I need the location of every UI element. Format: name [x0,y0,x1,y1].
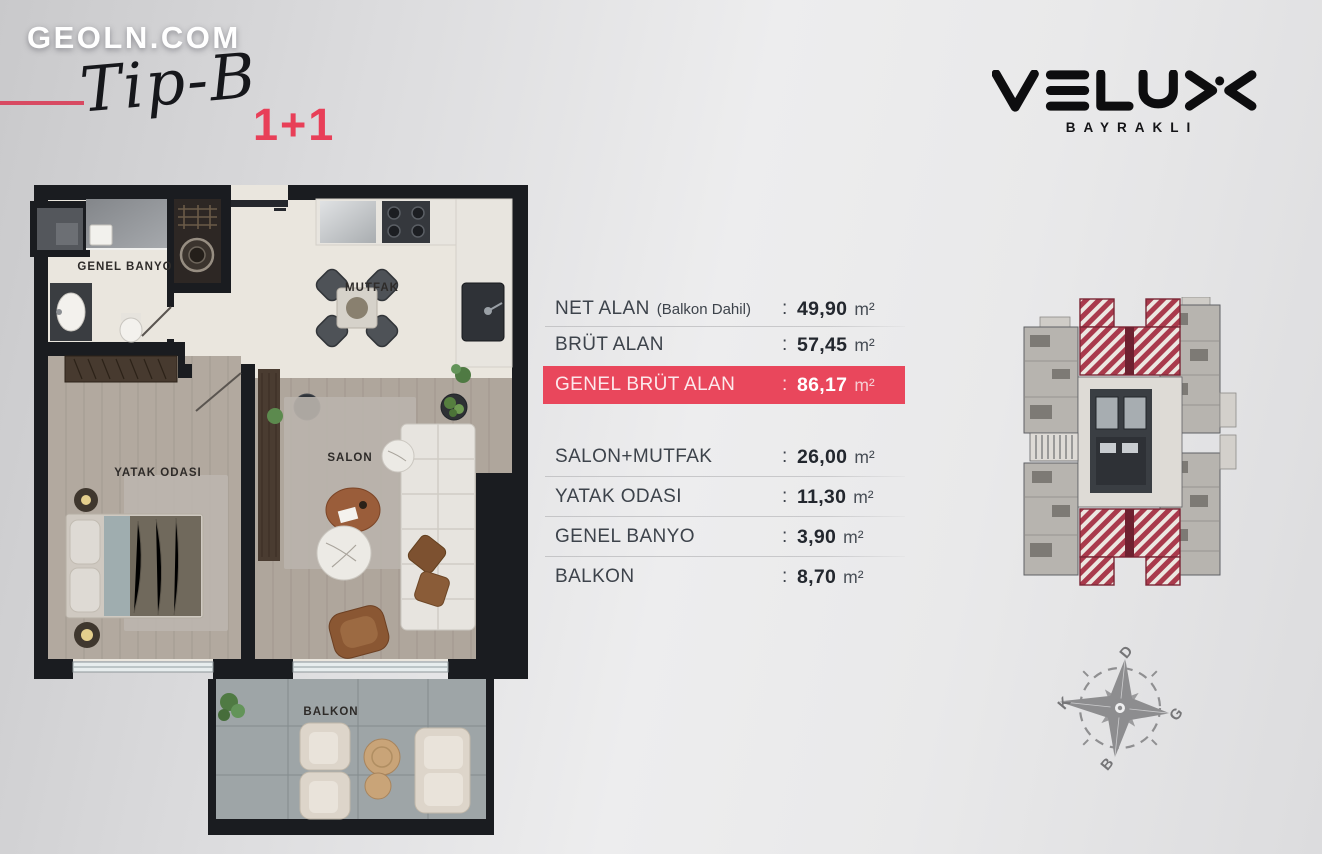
colon: : [782,526,797,548]
colon: : [782,298,797,320]
laundry-alcove [174,199,221,283]
colon: : [782,374,797,396]
compass-east-label: D [1116,643,1136,662]
row-unit: m² [853,487,873,508]
net-alan-row: NET ALAN(Balkon Dahil) : 49,90 m² [543,291,905,327]
balcony-label: BALKON [303,706,358,718]
row-label: BRÜT ALAN [555,334,664,356]
row-value: 8,70 [797,566,836,589]
kitchen-sink [462,283,504,341]
genel-banyo-row: GENEL BANYO : 3,90 m² [543,517,905,557]
kitchen-counter [320,201,376,243]
stove [382,201,430,243]
colon: : [782,334,797,356]
balcony-armchair [300,772,350,819]
row-label: GENEL BRÜT ALAN [555,374,735,396]
throw [104,516,130,616]
velux-logo-icon [992,70,1264,112]
row-value: 57,45 [797,334,847,357]
balcony-loveseat [415,728,470,813]
yatak-odasi-row: YATAK ODASI : 11,30 m² [543,477,905,517]
colon: : [782,566,797,588]
row-unit: m² [843,527,863,548]
colon: : [782,446,797,468]
exterior-shaft [30,201,90,257]
wicker-table [365,773,391,799]
row-unit: m² [843,567,863,588]
bath-mat [90,225,112,245]
bathroom-label: GENEL BANYO [77,261,172,273]
row-unit: m² [854,299,874,320]
row-unit: m² [854,335,874,356]
row-label: GENEL BANYO [555,526,695,548]
toilet [120,318,142,342]
row-unit: m² [854,375,874,396]
wicker-table [364,739,400,775]
compass-rose: D K G B [1052,640,1188,776]
row-label: BALKON [555,566,635,588]
balkon-row: BALKON : 8,70 m² [543,557,905,597]
row-value: 26,00 [797,446,847,469]
plant [267,408,283,424]
brut-alan-row: BRÜT ALAN : 57,45 m² [543,327,905,363]
balcony-armchair [300,723,350,770]
floor-plan: GENEL BANYO MUTFAK YATAK ODASI SALON BAL… [26,183,538,835]
row-value: 3,90 [797,526,836,549]
row-unit: m² [854,447,874,468]
developer-logo: BAYRAKLI [983,70,1273,135]
developer-location-label: BAYRAKLI [983,120,1273,135]
row-value: 11,30 [797,486,846,509]
row-value: 86,17 [797,374,847,397]
pillow [70,520,100,564]
compass-south-label: G [1166,704,1187,724]
genel-brut-alan-row: GENEL BRÜT ALAN : 86,17 m² [543,366,905,404]
kitchen-label: MUTFAK [345,282,399,294]
bedroom-label: YATAK ODASI [114,467,201,479]
page-canvas: GEOLN.COM Tip-B 1+1 BAYRAKLI NET ALAN(Ba… [0,0,1322,854]
row-note: (Balkon Dahil) [657,301,751,318]
room-config-label: 1+1 [253,99,335,151]
area-summary-panel: NET ALAN(Balkon Dahil) : 49,90 m² BRÜT A… [543,291,905,597]
building-key-plan [1022,297,1244,589]
plan-type-title: Tip-B [77,38,260,126]
accent-underline [0,101,84,105]
row-label: YATAK ODASI [555,486,682,508]
pillow [70,568,100,612]
table-gap [543,404,905,437]
compass-north-label: K [1054,694,1074,713]
salon-mutfak-row: SALON+MUTFAK : 26,00 m² [543,437,905,477]
row-value: 49,90 [797,298,847,321]
row-label: NET ALAN [555,298,650,320]
row-label: SALON+MUTFAK [555,446,712,468]
living-label: SALON [327,452,372,464]
bed [66,514,203,618]
colon: : [782,486,797,508]
